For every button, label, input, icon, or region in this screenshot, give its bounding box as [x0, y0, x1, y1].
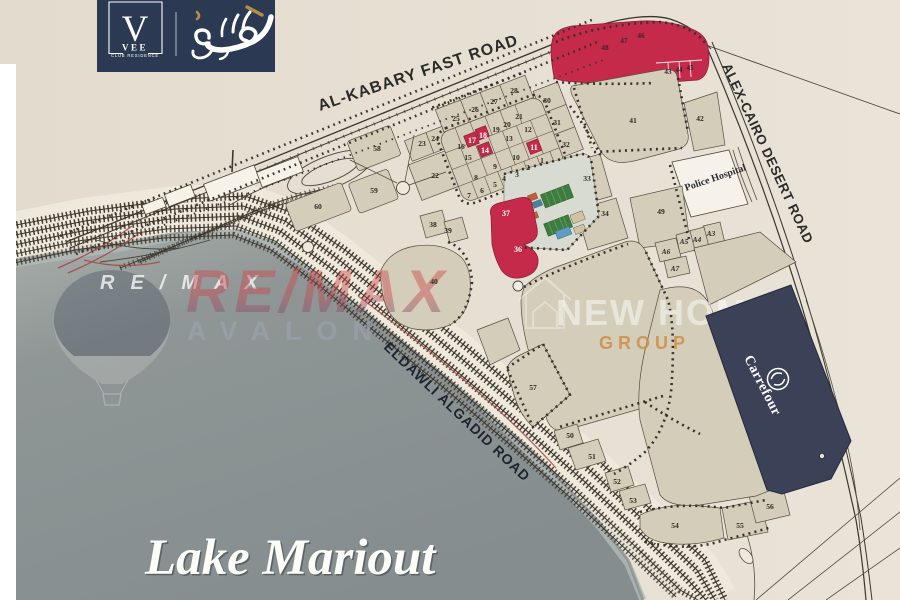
svg-text:22: 22 [431, 171, 439, 180]
svg-text:59: 59 [370, 186, 378, 195]
svg-text:44: 44 [675, 66, 683, 74]
svg-text:15: 15 [464, 153, 472, 162]
svg-text:47: 47 [620, 37, 628, 45]
svg-text:12: 12 [524, 125, 532, 134]
svg-text:GROUP: GROUP [599, 333, 690, 353]
svg-text:49: 49 [657, 207, 665, 216]
svg-text:31: 31 [553, 118, 561, 127]
svg-text:53: 53 [629, 496, 637, 505]
svg-text:33: 33 [583, 174, 591, 183]
svg-text:55: 55 [736, 521, 744, 530]
svg-text:36: 36 [514, 245, 522, 254]
svg-text:AVALON: AVALON [187, 316, 387, 346]
svg-text:19: 19 [492, 125, 500, 134]
svg-text:30: 30 [543, 96, 551, 105]
svg-text:50: 50 [566, 431, 574, 440]
svg-text:28: 28 [510, 86, 518, 95]
svg-text:4: 4 [502, 174, 506, 183]
svg-text:37: 37 [502, 209, 510, 218]
svg-text:32: 32 [562, 140, 570, 149]
svg-text:39: 39 [444, 226, 452, 235]
svg-text:Lake Mariout: Lake Mariout [144, 530, 437, 586]
svg-text:21: 21 [515, 112, 523, 121]
svg-text:16: 16 [457, 142, 465, 151]
svg-text:42: 42 [696, 114, 704, 123]
svg-text:48: 48 [601, 44, 609, 52]
svg-text:46: 46 [637, 32, 645, 40]
svg-text:23: 23 [418, 139, 426, 148]
svg-text:A3: A3 [706, 230, 716, 238]
svg-text:8: 8 [474, 173, 478, 182]
svg-text:45: 45 [686, 64, 694, 72]
svg-text:RE/MAX: RE/MAX [186, 258, 449, 325]
svg-text:13: 13 [505, 134, 513, 143]
svg-text:54: 54 [671, 521, 679, 530]
svg-text:52: 52 [613, 477, 621, 486]
svg-text:20: 20 [503, 120, 511, 129]
svg-text:38: 38 [429, 220, 437, 229]
svg-text:5: 5 [493, 180, 497, 189]
svg-text:18: 18 [479, 131, 487, 140]
svg-text:41: 41 [629, 116, 637, 125]
svg-text:60: 60 [314, 202, 322, 211]
svg-text:A5: A5 [679, 238, 689, 246]
svg-text:9: 9 [493, 162, 497, 171]
svg-text:2: 2 [526, 163, 530, 172]
svg-text:VEE: VEE [122, 43, 148, 53]
svg-text:14: 14 [481, 146, 489, 155]
svg-text:A6: A6 [661, 248, 671, 256]
svg-text:CLUB RESIDENCE: CLUB RESIDENCE [111, 53, 159, 58]
svg-text:A4: A4 [692, 236, 702, 244]
svg-text:40: 40 [430, 277, 438, 286]
svg-text:11: 11 [530, 143, 538, 152]
svg-text:25: 25 [452, 114, 460, 123]
svg-text:56: 56 [766, 502, 774, 511]
svg-text:58: 58 [373, 144, 381, 153]
svg-text:3: 3 [515, 170, 519, 179]
svg-text:10: 10 [512, 153, 520, 162]
svg-text:51: 51 [588, 452, 596, 461]
svg-text:34: 34 [601, 209, 609, 218]
svg-text:24: 24 [431, 134, 439, 143]
svg-text:17: 17 [468, 136, 476, 145]
svg-text:7: 7 [467, 191, 471, 200]
svg-text:6: 6 [480, 186, 484, 195]
svg-text:1: 1 [540, 156, 544, 165]
svg-text:43: 43 [664, 68, 672, 76]
svg-text:26: 26 [471, 105, 479, 114]
svg-text:27: 27 [490, 97, 498, 106]
svg-text:57: 57 [529, 383, 537, 392]
svg-text:A7: A7 [670, 265, 680, 273]
